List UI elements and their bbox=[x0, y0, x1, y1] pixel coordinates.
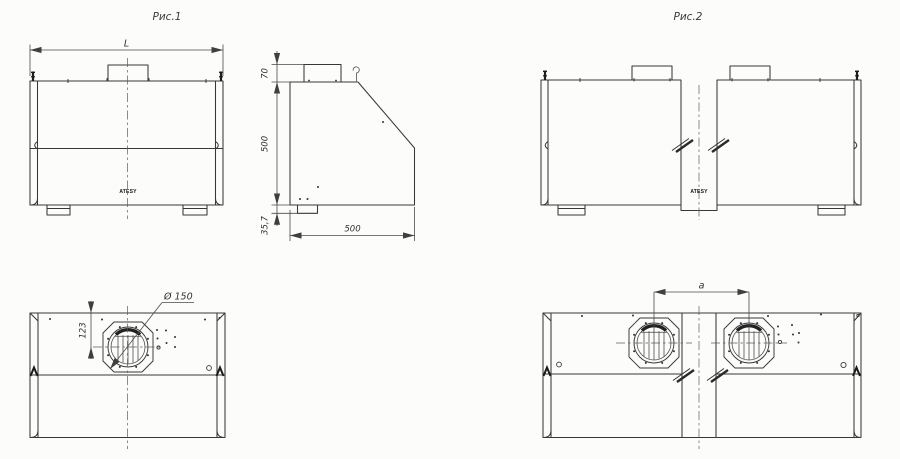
dim-duct-spacing: a bbox=[654, 281, 749, 333]
dim-overall-width: L bbox=[30, 39, 223, 77]
panel-hole bbox=[841, 362, 846, 367]
fig2-bottom-view: a bbox=[543, 281, 861, 450]
fig2-title: Рис.2 bbox=[674, 11, 703, 23]
dim-duct-spacing-label: a bbox=[699, 281, 705, 292]
drawing-sheet: Рис.1 ATESY L bbox=[0, 0, 900, 459]
mounting-bolt bbox=[543, 71, 547, 81]
mounting-bolt bbox=[31, 72, 35, 82]
dim-overall-width-label: L bbox=[124, 39, 129, 50]
figure-1: Рис.1 ATESY L bbox=[30, 11, 415, 449]
break-mark bbox=[672, 139, 693, 153]
technical-drawing: Рис.1 ATESY L bbox=[0, 0, 900, 459]
break-mark bbox=[708, 139, 729, 153]
hanging-hook bbox=[353, 67, 359, 81]
dim-collar-height-label: 70 bbox=[261, 68, 271, 79]
dim-duct-diameter-label: Ø 150 bbox=[163, 292, 193, 303]
fig1-bottom-view: 123 Ø 150 bbox=[30, 292, 225, 450]
dim-body-height-label: 500 bbox=[261, 136, 271, 152]
break-mark bbox=[707, 369, 728, 383]
fig1-side-outline bbox=[290, 65, 415, 214]
fig2-bottom-outline bbox=[543, 313, 861, 438]
fig1-title: Рис.1 bbox=[153, 11, 182, 23]
brand-logo: ATESY bbox=[119, 189, 137, 195]
dim-duct-offset: 123 bbox=[79, 301, 92, 359]
brand-logo: ATESY bbox=[690, 189, 708, 195]
dim-duct-offset-label: 123 bbox=[79, 322, 89, 338]
panel-hole bbox=[557, 362, 562, 367]
dim-side-dimensions: 70 500 35,7 500 bbox=[261, 51, 415, 241]
dim-depth-label: 500 bbox=[344, 225, 360, 235]
mounting-bolt bbox=[219, 72, 223, 82]
dim-foot-height-label: 35,7 bbox=[261, 215, 271, 235]
mounting-bolt bbox=[855, 71, 859, 81]
break-mark bbox=[673, 369, 694, 383]
fig1-side-view: 70 500 35,7 500 bbox=[261, 51, 415, 241]
fig2-front-view: ATESY bbox=[541, 66, 861, 220]
divider-clip bbox=[544, 368, 551, 377]
panel-hole bbox=[207, 366, 212, 371]
figure-2: Рис.2 ATESY bbox=[541, 11, 861, 449]
fig1-front-view: ATESY L bbox=[30, 39, 223, 220]
